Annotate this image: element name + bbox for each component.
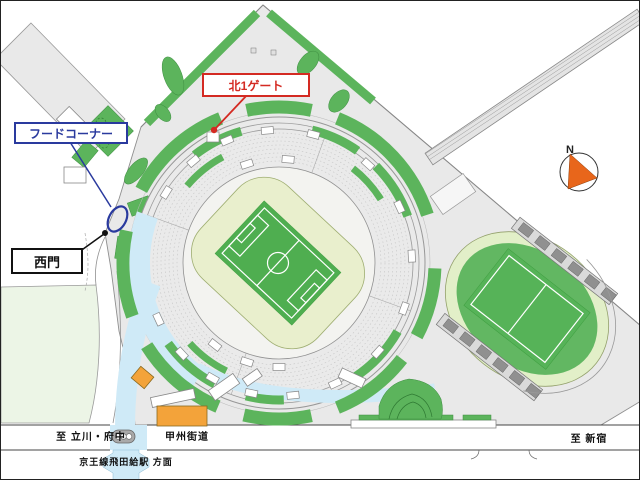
annotation-north-gate: 北1ゲート [202,73,310,97]
road-label-to-tachikawa-fuchu: 至 立川・府中 [31,428,151,443]
west-park [1,285,99,423]
annotation-west-gate: 西門 [11,248,83,274]
orange-building-large [157,406,207,426]
north-arrow-icon: N [560,144,598,191]
diagonal-road [425,9,640,165]
west-building [64,167,86,183]
annotation-food-corner: フードコーナー [14,122,128,144]
red-dot-marker-icon [211,127,217,133]
compass-north-label: N [566,144,574,156]
map-canvas: N [1,1,640,480]
stadium-area-map: N 北1ゲート フードコーナー 西門 至 立川・府中 甲州街道 至 新宿 京王線… [0,0,640,480]
west-road-curb-upper [95,237,105,285]
road-label-to-shinjuku: 至 新宿 [557,430,621,445]
road-label-to-tobitakyu-station: 京王線飛田給駅 方面 [61,455,191,468]
road-label-koshu-kaido: 甲州街道 [147,428,227,443]
black-dot-marker-icon [102,230,108,236]
west-gate-path [85,233,88,291]
